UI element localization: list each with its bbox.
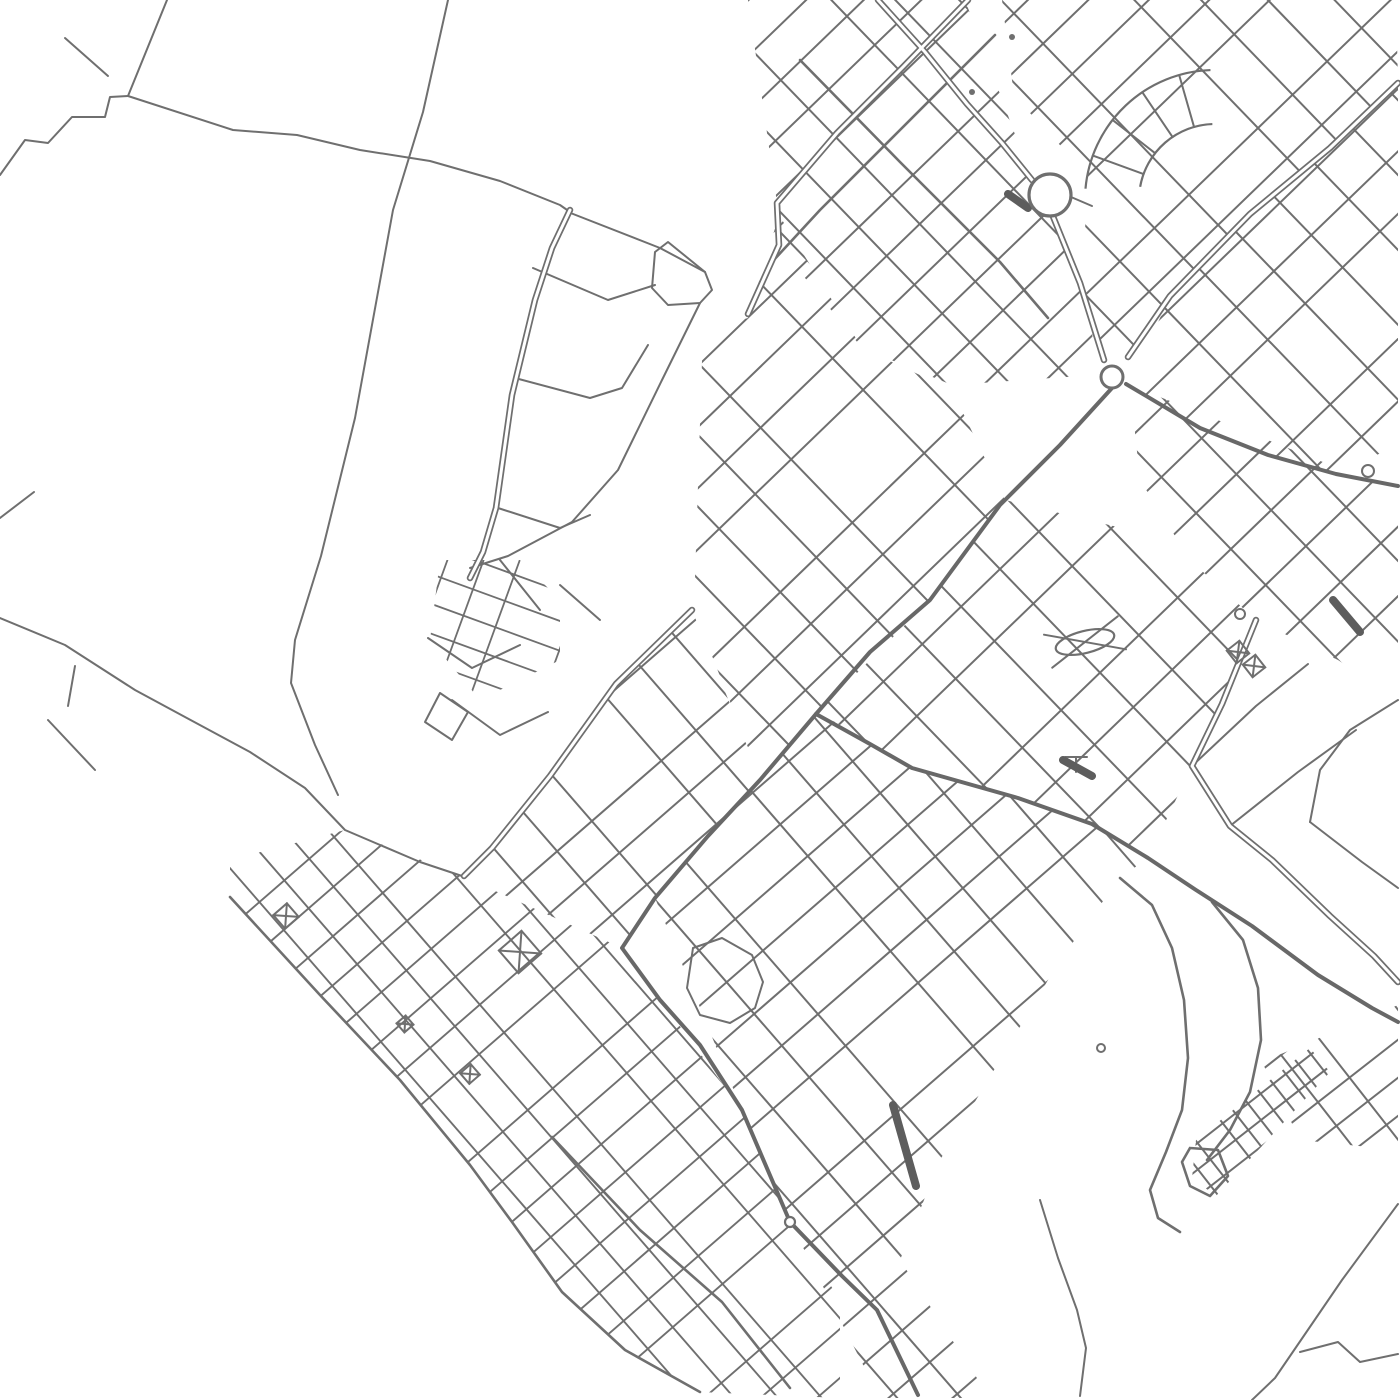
street-grid-line bbox=[1129, 105, 1400, 411]
road-minor bbox=[452, 700, 548, 735]
road-minor bbox=[128, 96, 570, 212]
street-grid-line bbox=[369, 897, 604, 1101]
street-grid-line bbox=[476, 668, 769, 923]
street-grid-line bbox=[920, 555, 1221, 846]
map-viewport bbox=[0, 0, 1400, 1400]
road-minor bbox=[533, 268, 655, 300]
road-minor bbox=[1310, 700, 1398, 822]
street-grid-line bbox=[987, 624, 1288, 915]
street-grid-line bbox=[786, 929, 1236, 1320]
building-dot bbox=[969, 89, 975, 95]
road-minor bbox=[48, 720, 95, 770]
road-minor bbox=[1300, 1342, 1398, 1362]
grid-patch bbox=[874, 0, 1400, 363]
street-grid-line bbox=[503, 699, 796, 954]
street-grid-line bbox=[421, 604, 714, 859]
street-grid-line bbox=[993, 484, 1269, 769]
street-grid-line bbox=[757, 208, 1057, 519]
street-grid-line bbox=[836, 670, 1276, 1176]
dual-road-inner bbox=[748, 0, 968, 314]
street-grid-line bbox=[337, 740, 892, 1379]
street-grid-line bbox=[764, 732, 1204, 1238]
street-grid-line bbox=[224, 729, 459, 933]
mini-circle-junction bbox=[785, 1217, 795, 1227]
street-grid-line bbox=[728, 764, 1168, 1270]
street-grid-line bbox=[1254, 235, 1400, 541]
road-medium bbox=[552, 1137, 790, 1388]
street-grid-line bbox=[540, 268, 862, 579]
street-grid-line bbox=[647, 0, 903, 154]
street-grid-line bbox=[799, 672, 1075, 957]
grid-patch bbox=[479, 205, 1057, 769]
street-grid-line bbox=[431, 530, 494, 704]
street-grid-line bbox=[853, 486, 1154, 777]
road-heavy bbox=[1333, 600, 1360, 632]
road-medium bbox=[800, 60, 1048, 318]
street-grid-line bbox=[396, 621, 572, 685]
crossed-square-symbol bbox=[273, 903, 298, 928]
street-grid-line bbox=[841, 992, 1291, 1383]
street-grid-line bbox=[563, 1120, 798, 1324]
street-grid-line bbox=[1049, 0, 1400, 330]
grid-patch bbox=[1236, 960, 1400, 1186]
arc-road bbox=[1085, 70, 1210, 189]
street-grid-line bbox=[988, 0, 1255, 263]
street-grid-line bbox=[263, 805, 818, 1400]
street-grid-line bbox=[915, 559, 1191, 844]
street-grid-line bbox=[601, 332, 923, 643]
road-minor bbox=[1252, 1204, 1398, 1400]
street-grid-line bbox=[925, 194, 1181, 441]
mini-circle-junction bbox=[1362, 465, 1374, 477]
street-grid-line bbox=[1190, 424, 1360, 589]
street-grid-line bbox=[588, 1148, 823, 1352]
dual-road-casing bbox=[464, 610, 692, 876]
road-minor bbox=[0, 96, 128, 175]
mini-circle-junction bbox=[1097, 1044, 1105, 1052]
street-grid-line bbox=[491, 1036, 726, 1240]
street-grid-line bbox=[649, 312, 949, 623]
roundabout bbox=[1101, 366, 1123, 388]
road-minor bbox=[65, 38, 108, 76]
street-grid-line bbox=[952, 223, 1208, 470]
road-minor bbox=[428, 638, 520, 668]
street-grid-line bbox=[1020, 659, 1321, 950]
road-major bbox=[816, 714, 1398, 1022]
street-grid-line bbox=[539, 1092, 774, 1296]
street-grid-line bbox=[1296, 1010, 1400, 1162]
street-grid-line bbox=[448, 796, 611, 984]
street-grid-line bbox=[483, 766, 646, 954]
street-grid-line bbox=[541, 417, 841, 728]
grid-patch bbox=[510, 607, 1348, 1400]
road-minor bbox=[568, 212, 705, 272]
road-minor bbox=[1071, 197, 1092, 206]
street-grid-line bbox=[406, 595, 582, 659]
street-grid-line bbox=[731, 865, 1181, 1256]
street-grid-line bbox=[1174, 1056, 1343, 1188]
road-minor bbox=[425, 693, 468, 740]
road-minor bbox=[560, 585, 600, 620]
street-grid-line bbox=[884, 86, 1151, 362]
street-grid-line bbox=[345, 869, 580, 1073]
street-grid-line bbox=[587, 675, 750, 863]
street-grid-line bbox=[1155, 388, 1325, 553]
street-grid-line bbox=[442, 981, 677, 1185]
street-grid-line bbox=[1257, 179, 1400, 401]
road-minor bbox=[1192, 664, 1308, 766]
street-grid-line bbox=[843, 0, 1226, 276]
street-grid-line bbox=[813, 961, 1263, 1352]
street-grid-line bbox=[577, 382, 877, 693]
street-grid-line bbox=[571, 300, 893, 611]
street-grid-line bbox=[619, 0, 875, 125]
street-grid-line bbox=[721, 243, 1021, 554]
road-medium bbox=[772, 35, 995, 262]
street-grid-line bbox=[820, 452, 1121, 743]
spoke-road bbox=[1179, 75, 1194, 127]
road-minor bbox=[1230, 730, 1356, 826]
street-grid-line bbox=[1310, 1062, 1400, 1185]
road-minor bbox=[500, 560, 540, 610]
street-grid-line bbox=[612, 1176, 847, 1380]
street-grid-line bbox=[394, 925, 629, 1129]
street-grid-line bbox=[547, 921, 987, 1400]
city-street-map bbox=[0, 0, 1400, 1400]
mini-circle-junction bbox=[1235, 609, 1245, 619]
street-grid-line bbox=[399, 518, 462, 692]
crossed-square-symbol bbox=[397, 1016, 414, 1033]
road-minor bbox=[1040, 1200, 1086, 1396]
road-minor bbox=[0, 618, 462, 876]
grid-patch bbox=[213, 697, 944, 1400]
street-grid-line bbox=[238, 827, 793, 1400]
grid-patch bbox=[421, 604, 824, 985]
road-minor bbox=[291, 0, 448, 795]
road-minor bbox=[68, 666, 75, 706]
street-grid-line bbox=[510, 953, 950, 1400]
street-grid-line bbox=[1086, 316, 1256, 481]
dual-road-casing bbox=[748, 0, 968, 314]
street-grid-line bbox=[1183, 251, 1398, 473]
street-grid-line bbox=[909, 607, 1349, 1113]
street-grid-line bbox=[272, 785, 507, 989]
street-grid-line bbox=[416, 568, 592, 632]
street-grid-line bbox=[954, 521, 1230, 806]
street-grid-line bbox=[1225, 460, 1395, 625]
street-grid-line bbox=[583, 890, 1023, 1396]
crossed-square-symbol bbox=[1243, 655, 1265, 677]
street-grid-line bbox=[479, 205, 801, 516]
road-minor bbox=[128, 0, 167, 96]
dual-road-casing bbox=[470, 210, 570, 578]
street-grid-line bbox=[248, 757, 483, 961]
road-minor bbox=[515, 345, 648, 398]
street-grid-line bbox=[387, 697, 942, 1336]
street-grid-line bbox=[515, 1064, 750, 1268]
street-grid-line bbox=[1265, 1034, 1384, 1186]
dual-road-inner bbox=[878, 0, 1032, 180]
street-grid-line bbox=[1220, 215, 1400, 437]
street-grid-line bbox=[709, 1288, 944, 1400]
street-grid-line bbox=[510, 237, 832, 548]
street-grid-line bbox=[619, 858, 1059, 1364]
grid-patch bbox=[799, 446, 1322, 957]
street-grid-line bbox=[1032, 446, 1308, 731]
street-grid-line bbox=[505, 451, 805, 762]
road-heavy bbox=[893, 1105, 916, 1186]
street-grid-line bbox=[1120, 352, 1290, 517]
dual-road-inner bbox=[470, 210, 570, 578]
street-grid-line bbox=[613, 347, 913, 658]
road-minor bbox=[1310, 822, 1398, 888]
road-medium bbox=[230, 897, 700, 1392]
street-grid-line bbox=[387, 647, 563, 711]
road-medium bbox=[1120, 878, 1188, 1232]
road-minor bbox=[0, 492, 34, 518]
road-minor bbox=[652, 242, 712, 305]
street-grid-line bbox=[1078, 14, 1400, 360]
street-grid-line bbox=[1091, 0, 1358, 163]
street-grid-line bbox=[1295, 143, 1400, 365]
street-grid-line bbox=[1086, 399, 1400, 725]
street-grid-line bbox=[527, 564, 590, 738]
street-grid-line bbox=[758, 897, 1208, 1288]
grid-patch bbox=[1097, 71, 1400, 541]
street-grid-line bbox=[1145, 287, 1360, 509]
roundabout bbox=[1029, 174, 1071, 216]
spoke-road bbox=[1113, 120, 1156, 153]
street-grid-line bbox=[1360, 960, 1400, 1112]
street-grid-line bbox=[656, 615, 819, 803]
grid-patch bbox=[387, 518, 601, 739]
road-medium bbox=[1207, 902, 1261, 1160]
building-dot bbox=[1009, 34, 1015, 40]
street-grid-line bbox=[466, 1008, 701, 1212]
